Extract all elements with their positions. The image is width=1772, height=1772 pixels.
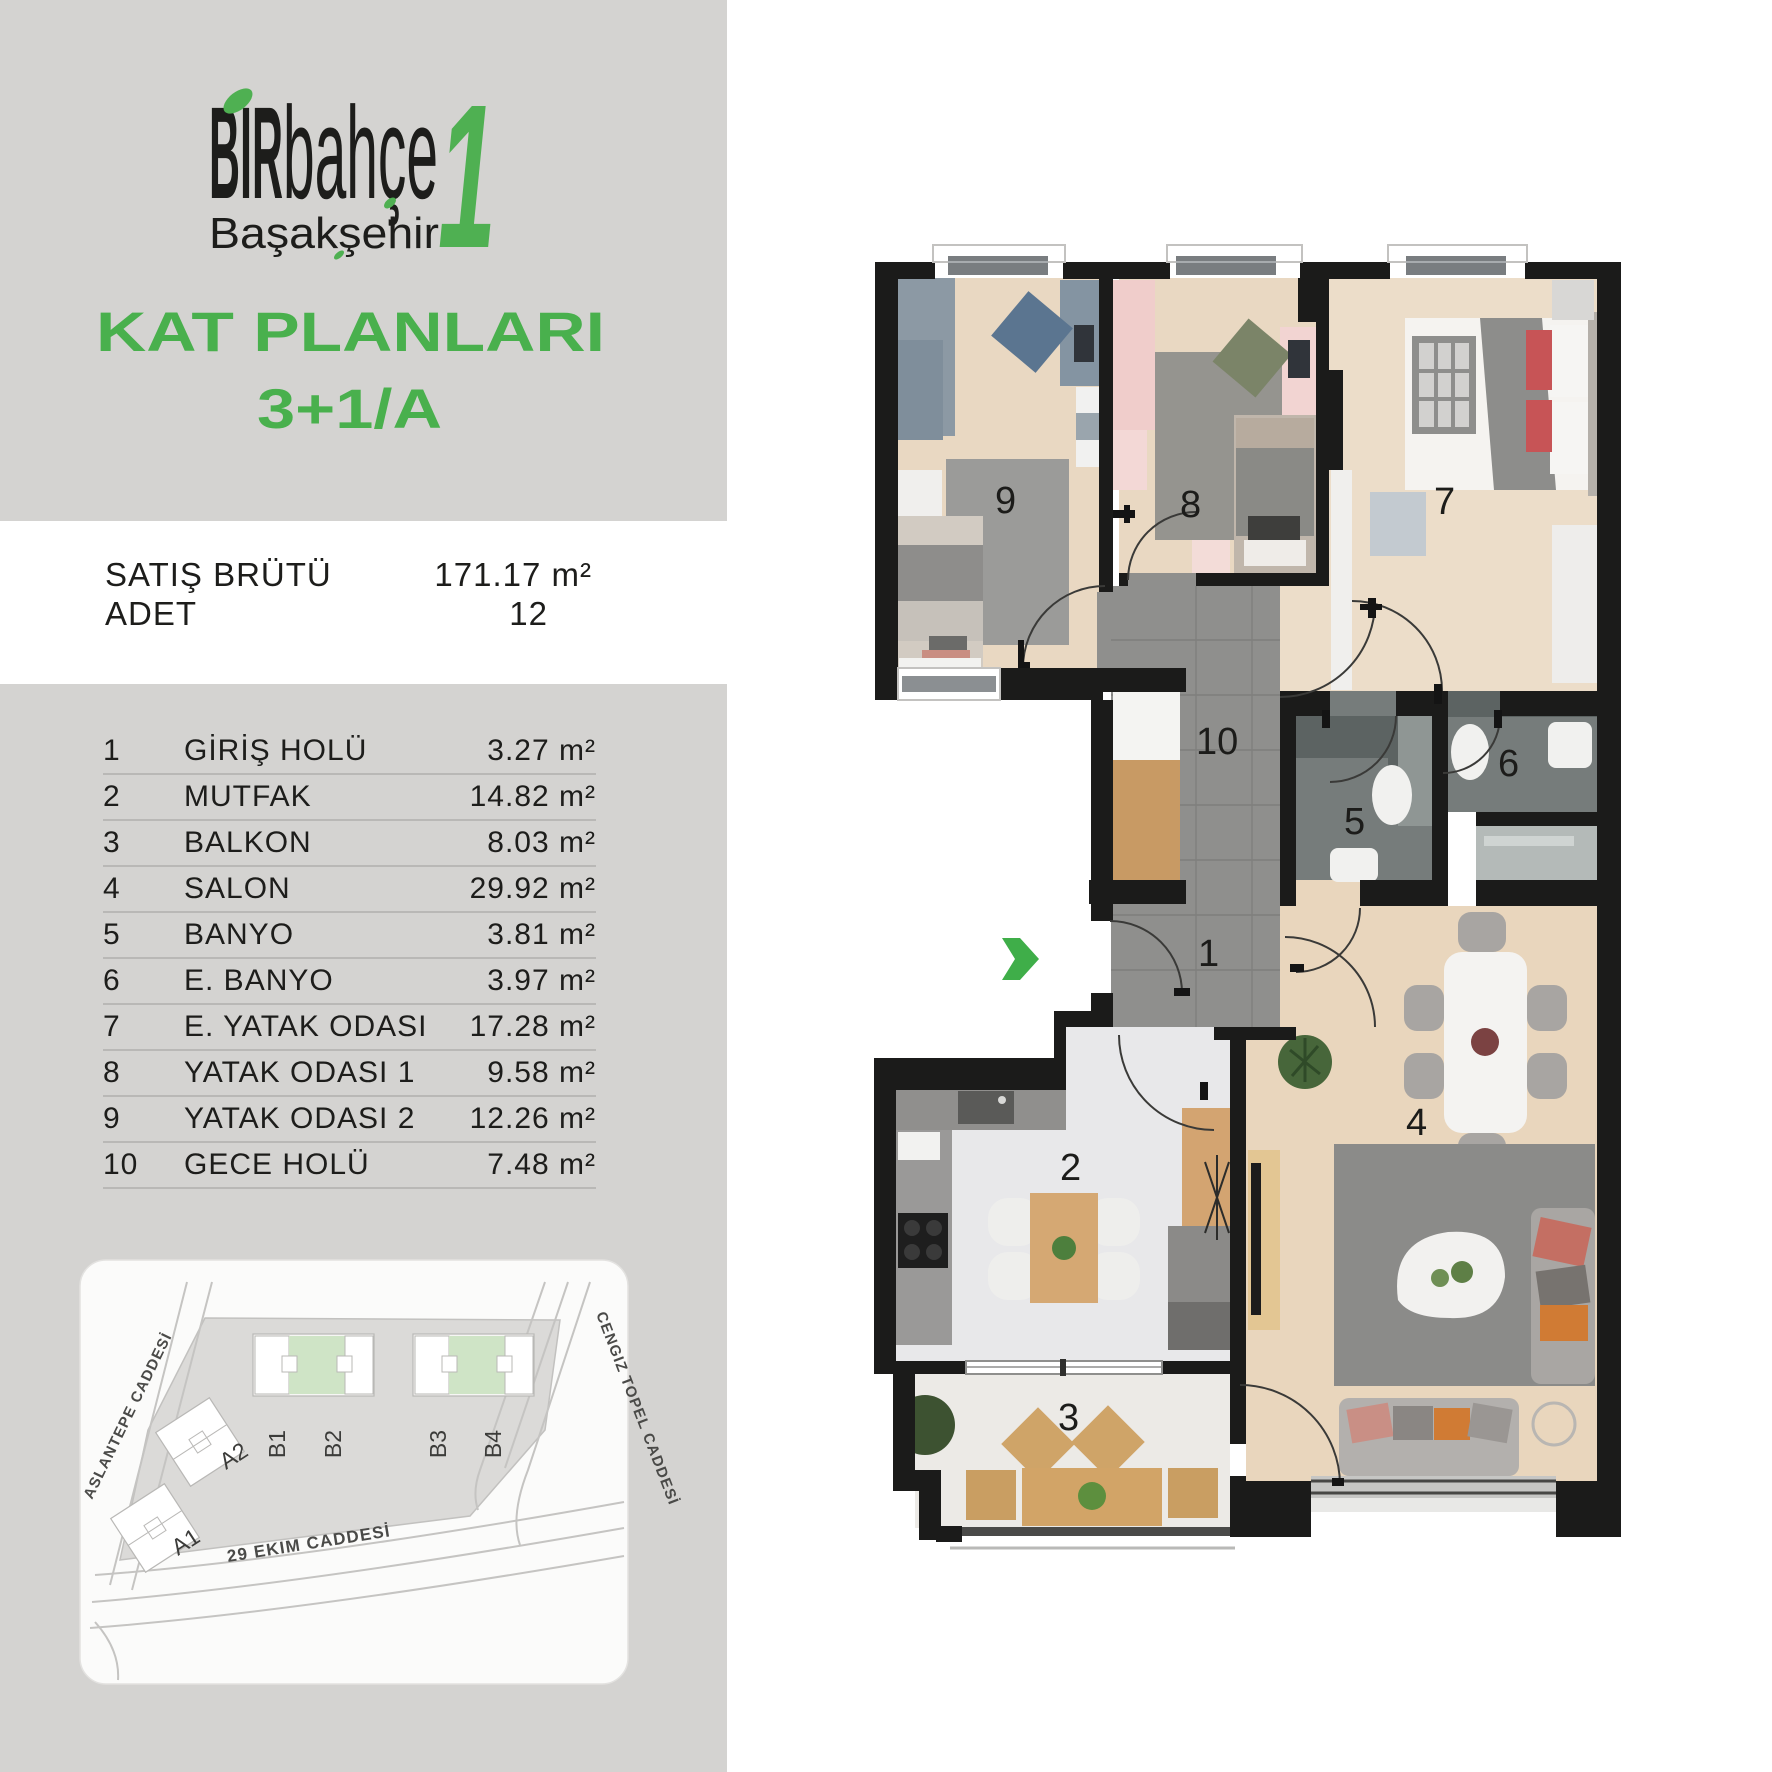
svg-text:17.28 m²: 17.28 m² xyxy=(470,1010,596,1043)
svg-text:8.03 m²: 8.03 m² xyxy=(487,826,596,859)
svg-text:1: 1 xyxy=(438,62,496,291)
svg-text:29.92 m²: 29.92 m² xyxy=(470,872,596,905)
svg-text:3.97 m²: 3.97 m² xyxy=(487,964,596,997)
svg-text:14.82 m²: 14.82 m² xyxy=(470,780,596,813)
svg-text:5: 5 xyxy=(1344,801,1365,843)
svg-text:8: 8 xyxy=(103,1056,121,1089)
svg-text:12: 12 xyxy=(509,595,548,632)
svg-text:YATAK ODASI 1: YATAK ODASI 1 xyxy=(184,1056,415,1089)
svg-text:3: 3 xyxy=(103,826,121,859)
svg-text:7: 7 xyxy=(103,1010,121,1043)
svg-text:4: 4 xyxy=(1406,1102,1427,1144)
svg-text:7: 7 xyxy=(1434,481,1455,523)
svg-text:10: 10 xyxy=(1196,721,1238,763)
svg-text:3+1/A: 3+1/A xyxy=(257,377,442,440)
svg-text:10: 10 xyxy=(103,1148,138,1181)
svg-text:GİRİŞ HOLÜ: GİRİŞ HOLÜ xyxy=(184,734,367,767)
svg-text:171.17 m²: 171.17 m² xyxy=(434,556,592,593)
svg-text:E. YATAK ODASI: E. YATAK ODASI xyxy=(184,1010,428,1043)
svg-text:B4: B4 xyxy=(480,1430,506,1458)
svg-text:9.58 m²: 9.58 m² xyxy=(487,1056,596,1089)
svg-text:12.26 m²: 12.26 m² xyxy=(470,1102,596,1135)
svg-text:B1: B1 xyxy=(264,1430,290,1458)
svg-text:ADET: ADET xyxy=(105,595,197,632)
svg-text:BALKON: BALKON xyxy=(184,826,312,859)
svg-text:6: 6 xyxy=(103,964,121,997)
svg-text:bahçe: bahçe xyxy=(283,79,438,226)
svg-text:4: 4 xyxy=(103,872,121,905)
svg-text:8: 8 xyxy=(1180,484,1201,526)
svg-text:SATIŞ BRÜTÜ: SATIŞ BRÜTÜ xyxy=(105,556,332,593)
svg-text:E. BANYO: E. BANYO xyxy=(184,964,334,997)
svg-text:SALON: SALON xyxy=(184,872,291,905)
svg-text:1: 1 xyxy=(103,734,121,767)
svg-text:GECE HOLÜ: GECE HOLÜ xyxy=(184,1148,370,1181)
svg-text:BANYO: BANYO xyxy=(184,918,294,951)
svg-text:9: 9 xyxy=(103,1102,121,1135)
svg-text:7.48 m²: 7.48 m² xyxy=(487,1148,596,1181)
svg-text:YATAK ODASI 2: YATAK ODASI 2 xyxy=(184,1102,415,1135)
svg-text:B2: B2 xyxy=(320,1430,346,1458)
svg-text:5: 5 xyxy=(103,918,121,951)
svg-text:6: 6 xyxy=(1498,743,1519,785)
svg-text:3.27 m²: 3.27 m² xyxy=(487,734,596,767)
svg-text:9: 9 xyxy=(995,480,1016,522)
svg-text:KAT PLANLARI: KAT PLANLARI xyxy=(96,300,605,363)
svg-text:B3: B3 xyxy=(425,1430,451,1458)
svg-text:2: 2 xyxy=(103,780,121,813)
svg-text:3: 3 xyxy=(1058,1397,1079,1439)
svg-text:Başakşehir: Başakşehir xyxy=(209,209,439,258)
svg-text:1: 1 xyxy=(1198,933,1219,975)
svg-text:2: 2 xyxy=(1060,1147,1081,1189)
svg-text:3.81 m²: 3.81 m² xyxy=(487,918,596,951)
svg-text:MUTFAK: MUTFAK xyxy=(184,780,312,813)
